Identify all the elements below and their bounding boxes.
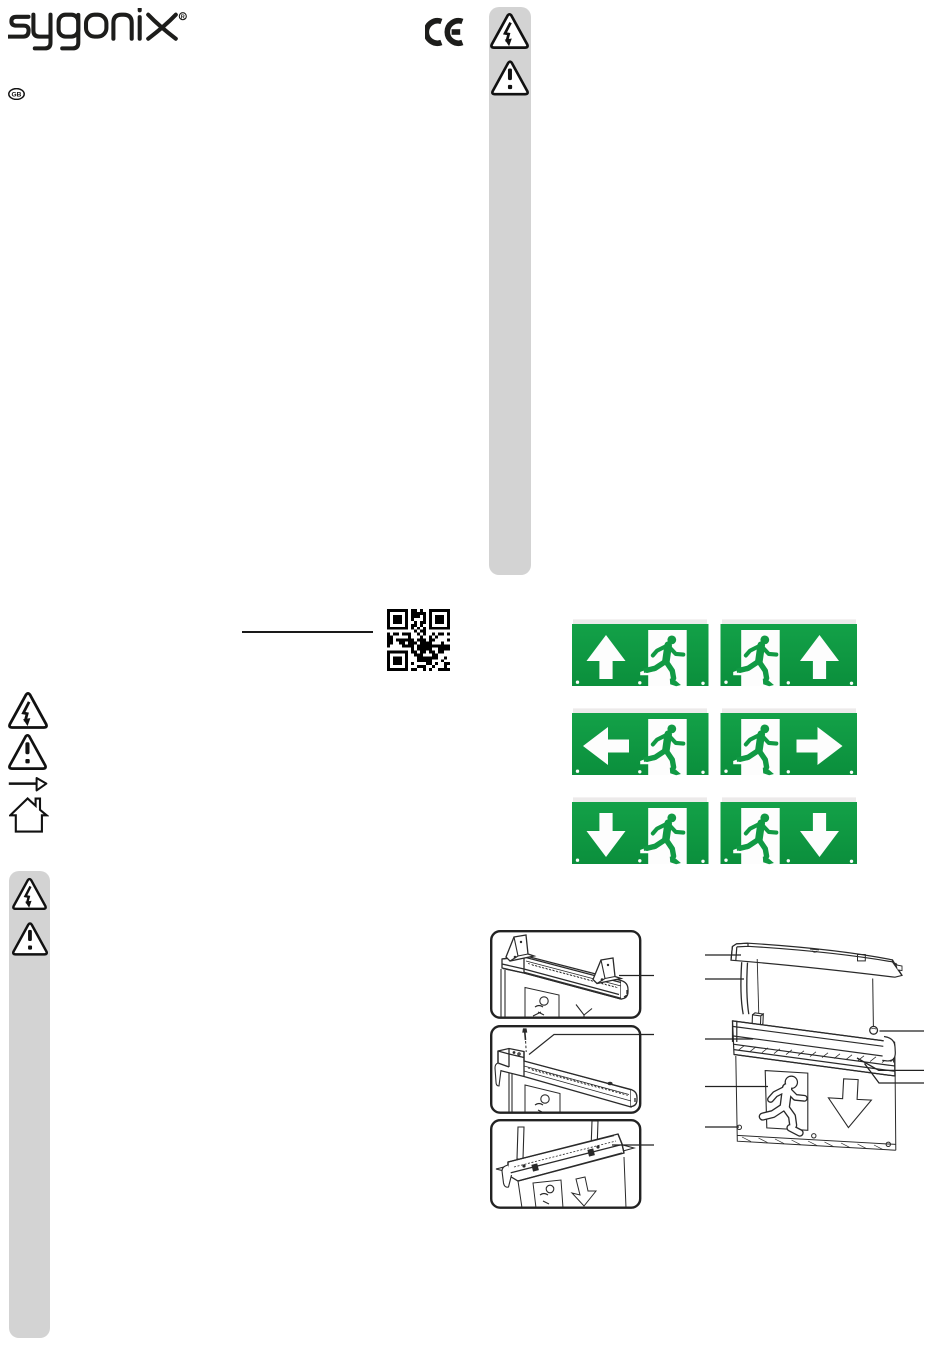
svg-text:GB: GB — [12, 91, 22, 98]
svg-text:R: R — [181, 14, 185, 20]
